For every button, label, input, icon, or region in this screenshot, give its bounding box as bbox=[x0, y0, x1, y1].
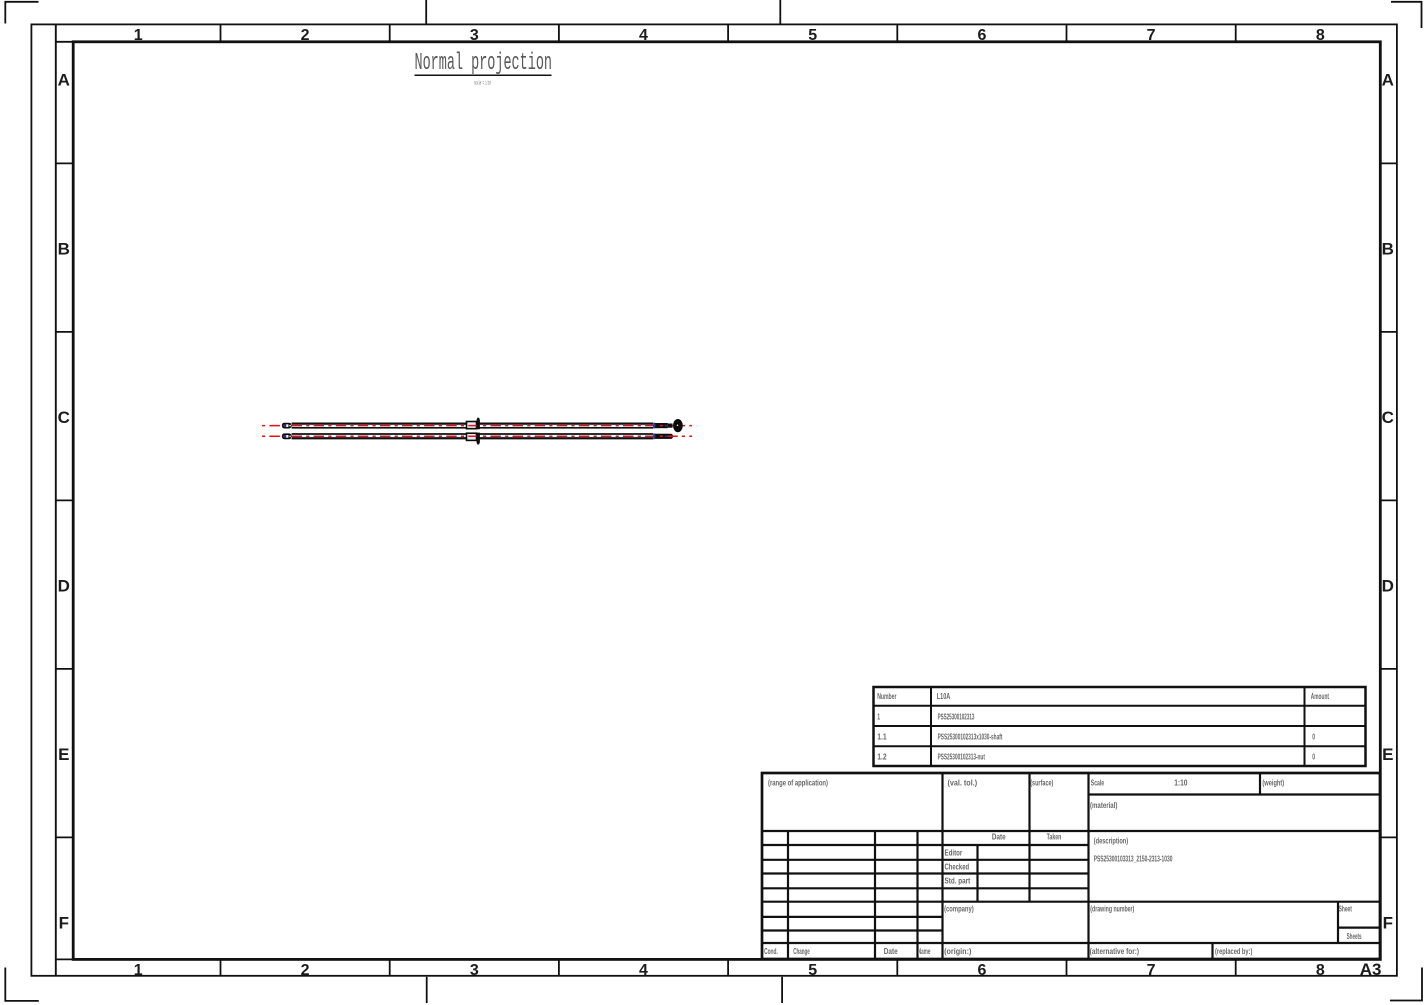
svg-text:Editor: Editor bbox=[945, 848, 963, 857]
svg-text:(weight): (weight) bbox=[1262, 779, 1284, 788]
svg-text:A3: A3 bbox=[1360, 960, 1382, 979]
svg-text:(val. tol.): (val. tol.) bbox=[948, 779, 978, 788]
svg-text:Date: Date bbox=[884, 947, 899, 956]
svg-text:Scale = 1:10: Scale = 1:10 bbox=[474, 80, 491, 86]
svg-text:5: 5 bbox=[808, 962, 817, 979]
svg-text:(drawing number): (drawing number) bbox=[1090, 904, 1134, 913]
svg-text:5: 5 bbox=[808, 27, 817, 44]
svg-text:E: E bbox=[58, 745, 69, 764]
svg-text:D: D bbox=[1382, 577, 1394, 596]
svg-text:Date: Date bbox=[992, 833, 1006, 842]
svg-text:C: C bbox=[1382, 408, 1394, 427]
svg-text:Cond.: Cond. bbox=[764, 947, 778, 956]
svg-text:(alternative for:): (alternative for:) bbox=[1090, 947, 1140, 956]
svg-text:Number: Number bbox=[877, 692, 896, 701]
svg-text:1.2: 1.2 bbox=[877, 753, 887, 762]
svg-text:4: 4 bbox=[639, 962, 648, 979]
svg-text:Checked: Checked bbox=[945, 863, 970, 872]
svg-text:(material): (material) bbox=[1090, 801, 1118, 810]
svg-text:Taken: Taken bbox=[1047, 833, 1062, 842]
svg-text:Sheets: Sheets bbox=[1347, 932, 1362, 941]
svg-text:Sheet: Sheet bbox=[1339, 904, 1353, 913]
svg-text:Scale: Scale bbox=[1091, 779, 1105, 788]
svg-text:(company): (company) bbox=[944, 904, 974, 913]
svg-text:6: 6 bbox=[977, 27, 986, 44]
svg-text:D: D bbox=[58, 577, 70, 596]
svg-text:B: B bbox=[58, 239, 70, 258]
svg-text:Normal projection: Normal projection bbox=[415, 50, 553, 77]
svg-text:6: 6 bbox=[977, 962, 986, 979]
svg-text:L10A: L10A bbox=[937, 692, 951, 701]
svg-text:Std. part: Std. part bbox=[945, 877, 971, 886]
svg-text:A: A bbox=[58, 71, 70, 90]
svg-text:8: 8 bbox=[1316, 27, 1325, 44]
svg-text:Amount: Amount bbox=[1311, 692, 1329, 701]
svg-text:(surface): (surface) bbox=[1030, 779, 1053, 788]
svg-text:8: 8 bbox=[1316, 962, 1325, 979]
svg-text:7: 7 bbox=[1147, 27, 1156, 44]
svg-text:0: 0 bbox=[1312, 733, 1315, 742]
svg-text:2: 2 bbox=[301, 962, 310, 979]
svg-text:1.1: 1.1 bbox=[877, 733, 887, 742]
svg-text:1: 1 bbox=[134, 27, 143, 44]
svg-text:3: 3 bbox=[470, 27, 479, 44]
svg-text:1: 1 bbox=[134, 962, 143, 979]
svg-text:(origin:): (origin:) bbox=[944, 947, 972, 956]
svg-text:3: 3 bbox=[470, 962, 479, 979]
svg-text:7: 7 bbox=[1147, 962, 1156, 979]
svg-text:PSS25300102313-nut: PSS25300102313-nut bbox=[938, 753, 986, 762]
svg-text:E: E bbox=[1382, 745, 1393, 764]
svg-text:C: C bbox=[58, 408, 70, 427]
svg-text:(replaced by:): (replaced by:) bbox=[1215, 947, 1253, 956]
svg-text:(description): (description) bbox=[1094, 836, 1129, 845]
svg-text:1: 1 bbox=[877, 712, 880, 721]
svg-text:F: F bbox=[59, 914, 69, 933]
svg-text:0: 0 bbox=[1312, 753, 1315, 762]
svg-text:1:10: 1:10 bbox=[1174, 779, 1188, 788]
svg-text:PSS25300102313: PSS25300102313 bbox=[938, 712, 975, 721]
svg-text:A: A bbox=[1382, 71, 1394, 90]
svg-text:F: F bbox=[1383, 914, 1393, 933]
svg-text:PSS25300103313_2150-2313-1030: PSS25300103313_2150-2313-1030 bbox=[1094, 854, 1173, 863]
svg-text:2: 2 bbox=[301, 27, 310, 44]
svg-text:Name: Name bbox=[918, 947, 931, 956]
svg-text:4: 4 bbox=[639, 27, 648, 44]
svg-text:(range of application): (range of application) bbox=[768, 779, 828, 788]
svg-text:PSS25300102313x1030-shaft: PSS25300102313x1030-shaft bbox=[938, 733, 1003, 742]
svg-text:Change: Change bbox=[793, 947, 810, 956]
svg-text:B: B bbox=[1382, 239, 1394, 258]
